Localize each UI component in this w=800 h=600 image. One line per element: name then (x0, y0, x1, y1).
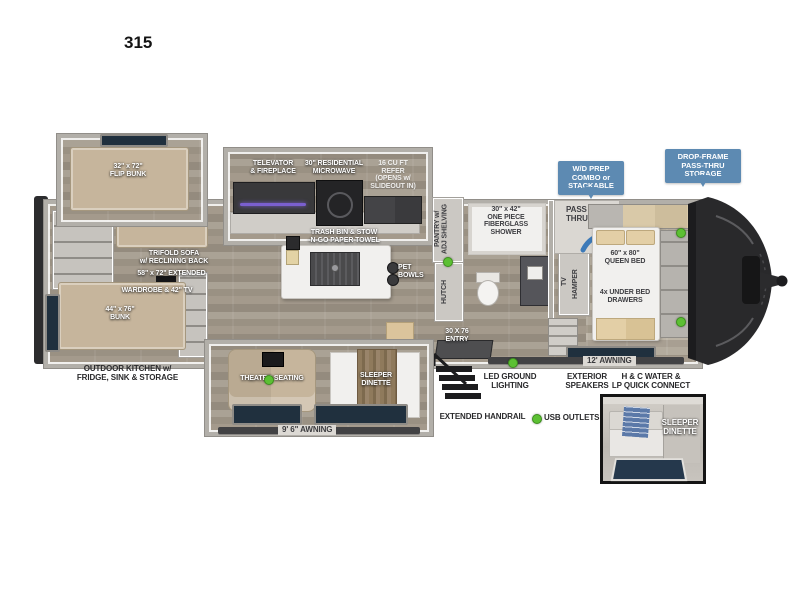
inset-ceiling (603, 397, 703, 404)
hutch-label: HUTCH (441, 272, 449, 312)
sleeper-dinette-label: SLEEPER DINETTE (350, 372, 402, 387)
vanity-sink-icon (527, 266, 543, 280)
front-cap (686, 192, 792, 370)
model-number: 315 (124, 33, 152, 53)
trifold-sofa-size-label: 58" x 72" EXTENDED (124, 270, 219, 278)
outdoor-kitchen-label: OUTDOOR KITCHEN w/ FRIDGE, SINK & STORAG… (50, 364, 205, 383)
bed-foot-bench (596, 318, 655, 340)
sink-faucet-icon (331, 264, 339, 272)
led-lighting-icon (508, 358, 518, 368)
shower-label: 30" x 42" ONE PIECE FIBERGLASS SHOWER (472, 206, 540, 236)
usb-outlet-icon (676, 317, 686, 327)
bedroom-wardrobe (588, 204, 696, 229)
under-bed-label: 4x UNDER BED DRAWERS (596, 289, 654, 304)
flip-bunk-window (100, 134, 168, 147)
usb-outlets-legend-label: USB OUTLETS (544, 413, 604, 422)
queen-bed-label: 60" x 80" QUEEN BED (596, 250, 654, 265)
trifold-sofa-label: TRIFOLD SOFA w/ RECLINING BACK (124, 250, 224, 265)
toilet-icon (477, 280, 499, 306)
pantry-label: PANTRY w/ ADJ SHELVING (434, 200, 449, 258)
led-lighting-label: LED GROUND LIGHTING (476, 372, 544, 391)
rear-window (45, 294, 60, 352)
usb-outlet-icon (264, 375, 274, 385)
bed-pillow (626, 230, 655, 245)
paper-towel-roll (286, 250, 299, 265)
bunk-label: 44" x 76" BUNK (80, 306, 160, 321)
stove-burner-icon (327, 192, 353, 218)
hamper-label: HAMPER (572, 262, 580, 306)
floorplan-canvas: 315 TRIFOLD SOFA w/ RECLINING BACK 58" x… (0, 0, 800, 600)
front-awning-label: 12' AWNING (583, 356, 636, 366)
entry-label: 30 X 76 ENTRY (436, 328, 478, 343)
fireplace-glow (240, 203, 306, 206)
main-awning-label: 9' 6" AWNING (278, 425, 336, 435)
wardrobe-tv-label: WARDROBE & 42" TV (112, 287, 202, 295)
fireplace-cabinet (233, 182, 315, 214)
flip-bunk-bed (70, 147, 189, 211)
wd-prep-callout: W/D PREP COMBO or STACKABLE (558, 161, 624, 195)
pet-bowls-label: PET BOWLS (398, 264, 432, 279)
usb-legend-icon (532, 414, 542, 424)
drop-frame-callout: DROP-FRAME PASS-THRU STORAGE (665, 149, 741, 183)
usb-outlet-icon (676, 228, 686, 238)
hutch-cabinet (434, 262, 464, 322)
theater-console (262, 352, 284, 367)
microwave-label: 30" RESIDENTIAL MICROWAVE (300, 160, 368, 175)
inset-table (611, 458, 688, 481)
trash-bin-label: TRASH BIN & STOW -N-GO PAPER TOWEL (296, 229, 392, 244)
televator-label: TELEVATOR & FIREPLACE (238, 160, 308, 175)
refrigerator-label: 16 CU FT REFER (OPENS w/ SLIDEOUT IN) (368, 160, 418, 190)
refrigerator-box (364, 196, 422, 224)
usb-outlet-icon (443, 257, 453, 267)
water-connect-label: H & C WATER & LP QUICK CONNECT (608, 372, 694, 391)
inset-blanket (622, 406, 650, 438)
bed-pillow (596, 230, 625, 245)
sleeper-dinette-inset-photo: SLEEPER DINETTE (600, 394, 706, 484)
floorplan-page: { "model_number": "315", "callouts": { "… (0, 0, 800, 600)
inset-caption: SLEEPER DINETTE (659, 419, 701, 436)
living-window (314, 404, 408, 425)
extended-handrail-label: EXTENDED HANDRAIL (430, 412, 535, 421)
living-window (232, 404, 302, 425)
bedroom-tv-label: TV (561, 268, 569, 296)
flip-bunk-label: 32" x 72" FLIP BUNK (88, 163, 168, 178)
